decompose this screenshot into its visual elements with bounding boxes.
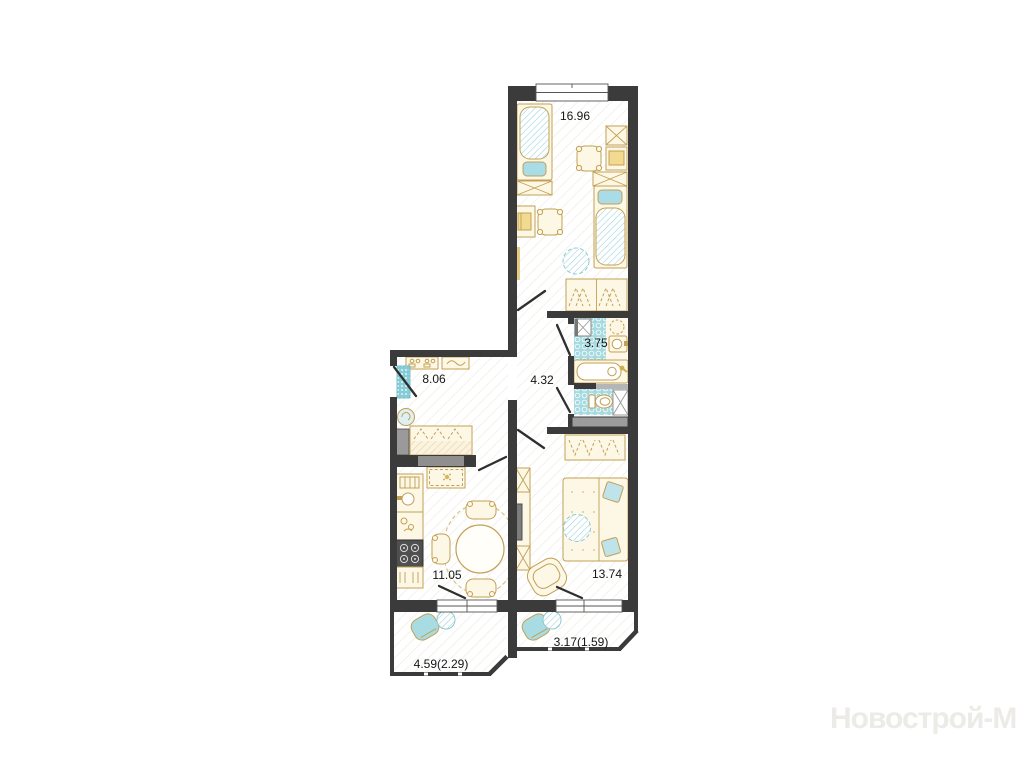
wall-bath-divider — [574, 383, 596, 389]
kitchen-balcony-window — [437, 600, 497, 612]
balcony-left-wall — [390, 612, 394, 676]
pouf-icon — [398, 409, 415, 426]
room-label-balcony-left: 4.59(2.29) — [414, 657, 469, 671]
wall-right-outer — [628, 88, 638, 612]
bathtub-icon — [574, 360, 628, 383]
washing-machine-icon — [575, 319, 591, 336]
wardrobe-icon — [566, 279, 627, 311]
room-label-corridor: 4.32 — [530, 373, 554, 387]
wall-left-outer-upper — [390, 350, 397, 366]
round-rug-icon — [564, 515, 591, 542]
dining-chair-icon — [432, 534, 450, 564]
wall-living-top — [547, 427, 638, 434]
room-label-balcony-right: 3.17(1.59) — [554, 635, 609, 649]
doormat-icon — [397, 366, 410, 398]
radiator-icon — [517, 247, 520, 280]
wall-bathroom-left — [568, 356, 574, 385]
prep-counter-icon — [396, 512, 423, 540]
wall-hall-top — [390, 350, 508, 357]
nightstand-icon — [593, 172, 627, 186]
toilet-icon — [589, 395, 613, 408]
room-label-kitchen: 11.05 — [432, 568, 461, 582]
shelf-icon — [442, 357, 469, 369]
desk-icon — [606, 147, 627, 170]
wall-mid-lower — [508, 400, 517, 612]
shoe-rack-icon — [406, 357, 438, 369]
page: { "watermark": { "text": "Новострой-М" }… — [0, 0, 1024, 768]
counter-sink-icon — [396, 474, 423, 512]
room-label-entrance-hall: 8.06 — [422, 372, 446, 386]
wall-left-outer-lower — [390, 397, 397, 612]
stove-icon — [396, 540, 423, 567]
sink-icon — [609, 336, 628, 352]
balcony-divider-wall — [508, 612, 517, 658]
dresser-icon — [565, 435, 625, 460]
watermark: Новострой-М — [830, 702, 1020, 736]
bed-icon — [594, 186, 627, 268]
desk-chair-icon — [537, 209, 562, 235]
duct-panel — [418, 456, 464, 466]
dining-chair-icon — [466, 501, 496, 519]
sliding-wardrobe-icon — [410, 426, 472, 455]
kitchen-cabinet-icon — [427, 467, 465, 488]
balcony-table-icon — [437, 611, 455, 629]
balcony-left-parapet — [390, 672, 491, 676]
wall-bath-divider-light — [596, 384, 628, 389]
bedroom-window — [536, 84, 608, 101]
living-balcony-window — [556, 600, 622, 612]
desk-icon — [516, 206, 535, 237]
glazing-tick — [424, 673, 428, 676]
round-rug-icon — [563, 248, 589, 274]
wall-mid-upper — [508, 88, 517, 357]
room-label-bedroom: 16.96 — [560, 109, 590, 123]
bed-icon — [517, 104, 552, 180]
wall-bedroom-bottom — [547, 311, 638, 318]
dining-chair-icon — [466, 579, 496, 597]
lower-cabinet-icon — [396, 567, 423, 588]
room-label-living-room: 13.74 — [592, 567, 622, 581]
vent-shaft — [572, 417, 628, 427]
shelving-unit-icon — [515, 468, 530, 570]
glazing-tick — [548, 648, 552, 651]
dining-table-icon — [456, 525, 504, 573]
bathroom-cabinet-icon — [613, 390, 628, 415]
shower-icon — [610, 320, 624, 334]
desk-chair-icon — [576, 146, 601, 171]
room-label-bathroom: 3.75 — [584, 336, 608, 350]
cabinet-icon — [395, 429, 409, 455]
wall-bathroom-left — [568, 311, 574, 324]
balcony-right-wall — [634, 612, 638, 632]
nightstand-icon — [606, 126, 627, 145]
nightstand-icon — [517, 181, 552, 195]
balcony-table-icon — [543, 611, 561, 629]
floorplan-svg: 16.96 8.06 4.32 3.75 11.05 13.74 4.59(2.… — [0, 0, 1024, 768]
glazing-tick — [458, 673, 462, 676]
